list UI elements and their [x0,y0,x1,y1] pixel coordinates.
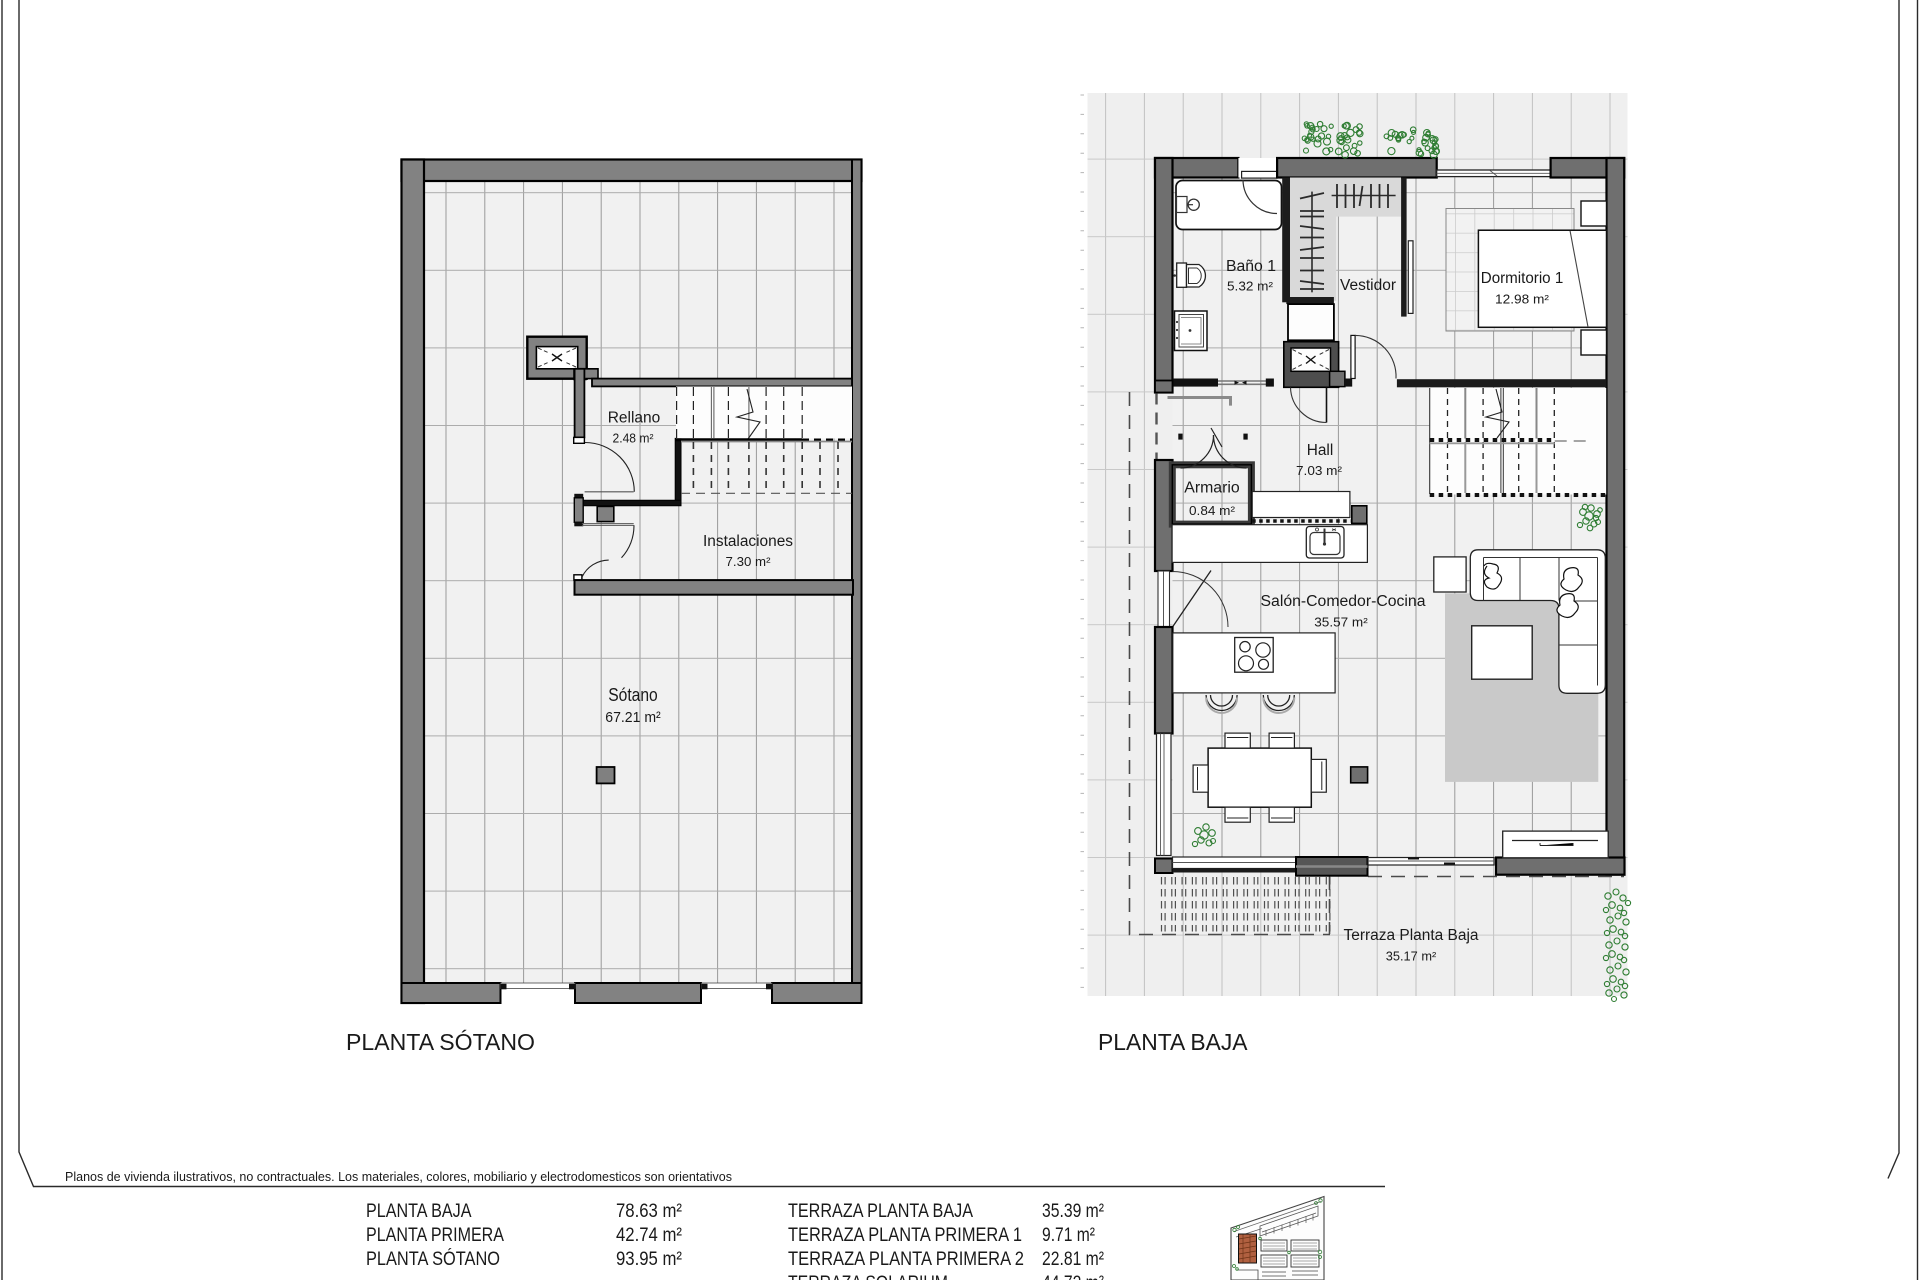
svg-text:12.98 m²: 12.98 m² [1495,292,1550,307]
svg-text:35.57 m²: 35.57 m² [1314,615,1368,630]
svg-text:Dormitorio 1: Dormitorio 1 [1481,270,1564,287]
svg-text:PLANTA BAJA: PLANTA BAJA [366,1201,472,1222]
svg-text:0.84 m²: 0.84 m² [1189,503,1236,518]
svg-text:35.17 m²: 35.17 m² [1386,949,1437,964]
svg-text:93.95 m²: 93.95 m² [616,1249,682,1270]
svg-text:7.03 m²: 7.03 m² [1296,463,1343,478]
svg-text:78.63 m²: 78.63 m² [616,1201,682,1222]
svg-text:Baño 1: Baño 1 [1226,258,1276,275]
svg-text:44.72 m²: 44.72 m² [1042,1273,1104,1280]
svg-text:PLANTA SÓTANO: PLANTA SÓTANO [366,1248,500,1270]
svg-text:9.71 m²: 9.71 m² [1042,1225,1095,1246]
svg-text:TERRAZA SOLARIUM: TERRAZA SOLARIUM [788,1273,948,1280]
svg-text:2.48 m²: 2.48 m² [613,431,655,446]
svg-text:Vestidor: Vestidor [1340,277,1396,294]
svg-text:22.81 m²: 22.81 m² [1042,1249,1104,1270]
svg-text:35.39 m²: 35.39 m² [1042,1201,1104,1222]
svg-text:Hall: Hall [1307,442,1334,459]
svg-text:Rellano: Rellano [608,410,661,427]
svg-text:67.21 m²: 67.21 m² [605,709,661,726]
svg-text:TERRAZA PLANTA BAJA: TERRAZA PLANTA BAJA [788,1201,973,1222]
svg-text:5.32 m²: 5.32 m² [1227,279,1274,294]
svg-text:Terraza Planta Baja: Terraza Planta Baja [1344,927,1479,944]
svg-text:Salón-Comedor-Cocina: Salón-Comedor-Cocina [1261,593,1426,610]
svg-text:TERRAZA PLANTA PRIMERA 1: TERRAZA PLANTA PRIMERA 1 [788,1225,1022,1246]
svg-text:Armario: Armario [1184,480,1240,497]
svg-text:PLANTA SÓTANO: PLANTA SÓTANO [346,1029,535,1055]
svg-text:Instalaciones: Instalaciones [703,533,793,550]
svg-text:Sótano: Sótano [608,685,658,705]
svg-text:PLANTA BAJA: PLANTA BAJA [1098,1029,1248,1055]
svg-text:TERRAZA PLANTA PRIMERA 2: TERRAZA PLANTA PRIMERA 2 [788,1249,1024,1270]
svg-text:Planos de vivienda ilustrativo: Planos de vivienda ilustrativos, no cont… [65,1170,732,1184]
svg-text:PLANTA PRIMERA: PLANTA PRIMERA [366,1225,504,1246]
svg-text:42.74 m²: 42.74 m² [616,1225,682,1246]
svg-text:7.30 m²: 7.30 m² [726,554,772,569]
